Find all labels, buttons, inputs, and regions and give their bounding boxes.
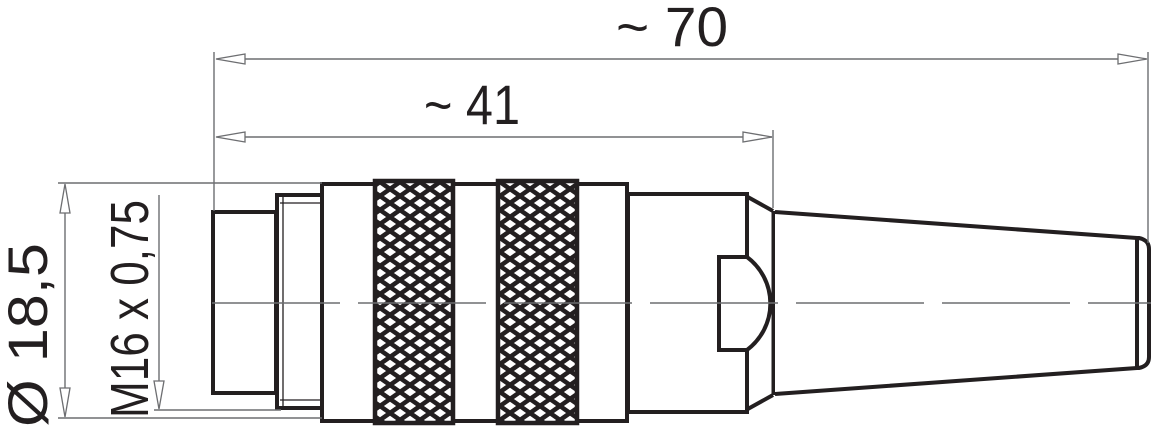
arrowhead-up: [60, 184, 70, 213]
arrowhead-right: [1118, 54, 1147, 64]
collar-ring: [277, 195, 322, 408]
arrowhead-left: [216, 132, 245, 142]
connector-technical-drawing: ~ 70 ~ 41 Ø 18,5 M16 x 0,75: [0, 0, 1151, 427]
arrowhead-right: [743, 132, 772, 142]
dim-thread-label: M16 x 0,75: [100, 200, 160, 418]
knurl-band-rear: [498, 181, 577, 423]
rear-chamfer-bottom: [746, 395, 773, 410]
rear-chamfer-top: [746, 196, 773, 211]
arrowhead-down: [60, 388, 70, 417]
connector-body: [212, 181, 1151, 423]
dim-grip-diameter-label: Ø 18,5: [0, 243, 59, 427]
dim-front-length-label: ~ 41: [424, 73, 520, 136]
knurl-band-front: [375, 181, 453, 423]
technical-drawing-canvas: ~ 70 ~ 41 Ø 18,5 M16 x 0,75: [0, 0, 1151, 427]
arrowhead-left: [216, 54, 245, 64]
dim-overall-length-label: ~ 70: [616, 0, 728, 58]
